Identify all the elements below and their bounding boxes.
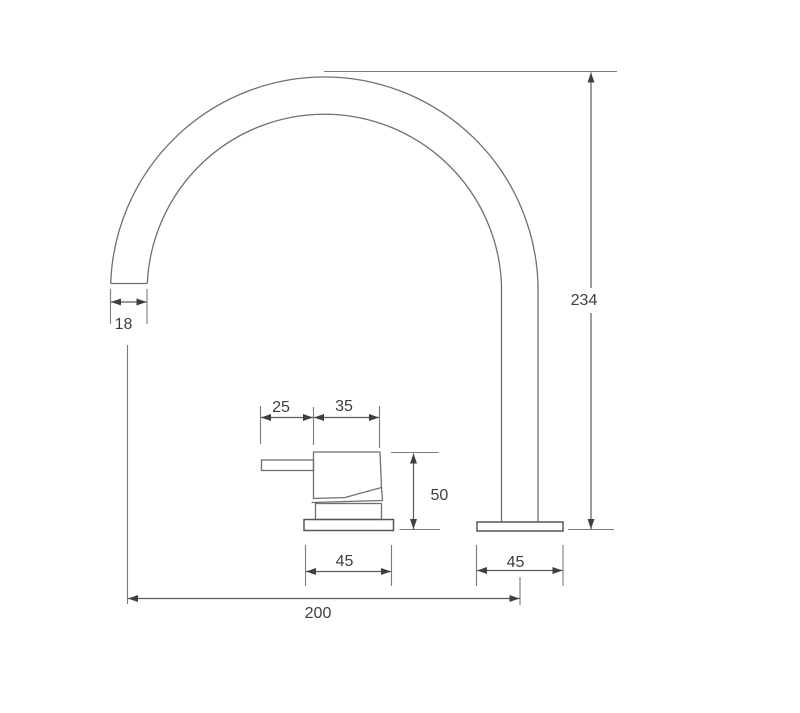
dimension-handle-height: 50	[391, 453, 448, 530]
dimension-lever-and-body-width: 25 35	[261, 398, 380, 448]
spout-outer-arc	[111, 77, 538, 522]
dim-label-35: 35	[335, 398, 353, 415]
handle-seat-line	[312, 501, 384, 503]
handle-outline	[262, 452, 394, 531]
dim-label-45-spout: 45	[507, 554, 525, 571]
spout-base-flange	[477, 522, 563, 531]
handle-lever	[262, 460, 314, 471]
dim-label-18: 18	[115, 316, 133, 333]
handle-cartridge-housing	[316, 504, 382, 520]
dimension-handle-base-width: 45	[306, 545, 392, 586]
dim-label-45-handle: 45	[336, 553, 354, 570]
dim-label-234: 234	[571, 292, 598, 309]
dim-label-25: 25	[272, 399, 290, 416]
spout-outline	[111, 77, 563, 531]
dim-label-200: 200	[305, 605, 332, 622]
handle-body-collar-edge	[382, 488, 383, 501]
handle-base-flange	[304, 520, 394, 531]
faucet-dimension-drawing: 18 234 25 35 50	[0, 0, 800, 713]
spout-inner-arc	[147, 114, 501, 522]
dim-label-50: 50	[431, 487, 449, 504]
dimension-spout-reach: 200	[128, 345, 521, 622]
dimension-overall-height: 234	[324, 72, 617, 530]
dimension-spout-outlet-diameter: 18	[111, 289, 148, 333]
handle-body	[314, 452, 382, 499]
technical-drawing-canvas: 18 234 25 35 50	[0, 0, 800, 713]
